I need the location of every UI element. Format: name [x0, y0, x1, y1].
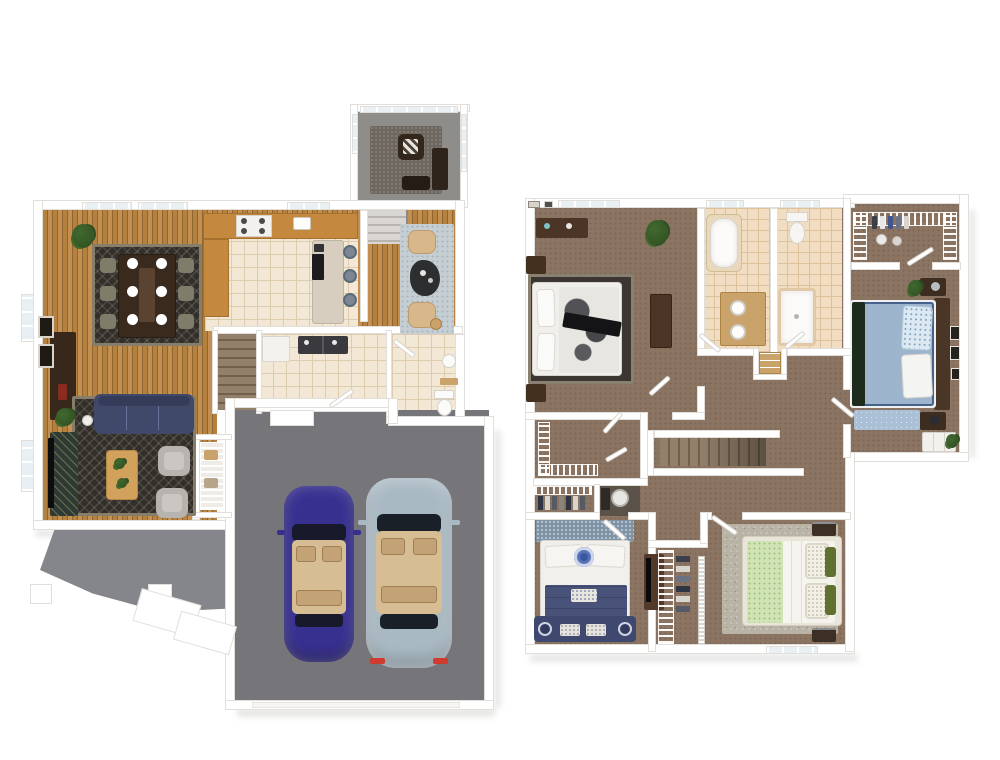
- wall2-wing-right: [959, 194, 969, 460]
- bed-navy: [540, 540, 630, 618]
- master-window: [558, 200, 620, 208]
- louver-door: [698, 556, 705, 644]
- stairwell-wall-bottom: [646, 468, 804, 476]
- bed-pillow-pattern: [901, 305, 933, 351]
- toilet-tank: [786, 212, 808, 222]
- bed-green: [742, 536, 842, 626]
- bedroom4-wall-top-b: [742, 512, 851, 520]
- hanging-clothes: [880, 216, 885, 229]
- shower-drain: [794, 314, 799, 319]
- hanging-clothes: [676, 556, 690, 562]
- floor-plan-canvas: [0, 0, 1000, 760]
- hanging-clothes: [676, 566, 690, 572]
- bedroom3-wall-top-a: [525, 512, 600, 520]
- medallion-pillow: [574, 547, 594, 567]
- stairwell-shade: [700, 438, 766, 466]
- hanging-clothes: [676, 576, 690, 582]
- hanging-clothes: [896, 216, 901, 229]
- closet-bin: [876, 234, 887, 245]
- wall-art: [950, 346, 960, 360]
- vanity-sink: [730, 300, 746, 316]
- baths-wall-bottom-b: [787, 348, 851, 356]
- bedroom3-wall-top-b: [628, 512, 650, 520]
- hanging-clothes: [676, 606, 690, 612]
- bed-dark-throw: [852, 302, 865, 406]
- master-wall-bottom-b: [672, 412, 705, 420]
- bed-pillow-white: [901, 353, 933, 399]
- bench-bolster: [538, 622, 552, 636]
- bath-tub-window: [706, 200, 744, 208]
- bath-shower-window: [780, 200, 820, 208]
- hanging-clothes: [545, 496, 550, 510]
- wall2-junction-lower: [843, 424, 851, 458]
- wing-closet-shelf-right: [943, 212, 957, 260]
- green-blanket: [747, 541, 783, 623]
- dresser-decor: [566, 223, 572, 229]
- clothes-closet-shelf: [534, 486, 592, 495]
- bench-pillow: [586, 624, 606, 636]
- wall-art: [950, 326, 960, 340]
- master-wall-frames: [528, 201, 540, 208]
- hanging-clothes: [676, 596, 690, 602]
- olive-pillow: [825, 547, 836, 577]
- bed-pillow: [536, 333, 555, 372]
- hanging-clothes: [580, 496, 585, 510]
- wing-closet-wall-a: [851, 262, 900, 270]
- hanging-clothes: [538, 496, 543, 510]
- toilet-bowl: [789, 222, 805, 244]
- linen-wall-bottom: [753, 374, 787, 380]
- second-floor-plan: [0, 0, 1000, 760]
- bath-separator: [770, 208, 778, 354]
- dresser-plant: [946, 434, 958, 448]
- bed-duvet-white: [545, 569, 627, 585]
- bed-blue: [850, 298, 950, 410]
- nightstand-sphere: [930, 416, 939, 425]
- shared-closet-wall-top: [648, 540, 708, 548]
- master-armoire: [650, 294, 672, 348]
- bedroom4-wall-left: [700, 512, 708, 544]
- stairwell-wall-top: [654, 430, 780, 438]
- nightstand: [812, 628, 836, 642]
- accent-pillow-white: [571, 589, 597, 602]
- wall-art: [951, 368, 960, 380]
- hanging-clothes: [552, 496, 557, 510]
- shared-closet-shelf: [658, 550, 674, 644]
- hanging-clothes: [888, 216, 893, 229]
- closet-bin: [892, 236, 902, 246]
- plan-shadow: [969, 210, 975, 458]
- storage-bench: [534, 616, 636, 642]
- water-heater: [611, 489, 629, 507]
- plan-shadow: [530, 654, 858, 662]
- closets-wall-mid: [533, 478, 648, 486]
- nightstand-plant: [908, 280, 922, 296]
- wing-closet-shelf-left: [853, 212, 867, 260]
- master-nightstand: [526, 256, 546, 274]
- master-wall-bottom-a: [525, 412, 647, 420]
- vanity-sink: [730, 324, 746, 340]
- hall-closet-shelf-horiz: [538, 464, 598, 476]
- hanging-clothes: [573, 496, 578, 510]
- wing-closet-wall-b: [932, 262, 961, 270]
- wall2-top-wing: [843, 194, 969, 204]
- hanging-clothes: [676, 586, 690, 592]
- utility-panel: [601, 488, 610, 510]
- master-nightstand: [526, 384, 546, 402]
- hanging-clothes: [872, 216, 877, 229]
- dresser-decor: [544, 223, 550, 229]
- master-wall-frames: [544, 201, 553, 208]
- bathtub: [710, 218, 738, 268]
- bed-headboard: [934, 298, 950, 410]
- bed-pillow: [536, 289, 555, 328]
- olive-pillow: [825, 585, 836, 615]
- nightstand: [812, 522, 836, 536]
- bedroom-blue-rug: [854, 410, 920, 430]
- closetL-wall-right: [640, 412, 648, 482]
- wall2-right-lower: [845, 452, 855, 652]
- hanging-clothes: [566, 496, 571, 510]
- linen-shelves: [759, 352, 781, 374]
- wall2-wing-bottom: [845, 452, 969, 462]
- tv: [646, 558, 651, 602]
- bench-pillow: [560, 624, 580, 636]
- bedroom-green-window: [766, 646, 818, 654]
- hanging-clothes: [559, 496, 564, 510]
- bench-bolster: [618, 622, 632, 636]
- nightstand-lamp: [931, 282, 940, 291]
- master-bed: [532, 282, 622, 376]
- baths-wall-bottom-a: [697, 348, 755, 356]
- master-plant: [646, 220, 668, 246]
- hanging-clothes: [904, 216, 909, 229]
